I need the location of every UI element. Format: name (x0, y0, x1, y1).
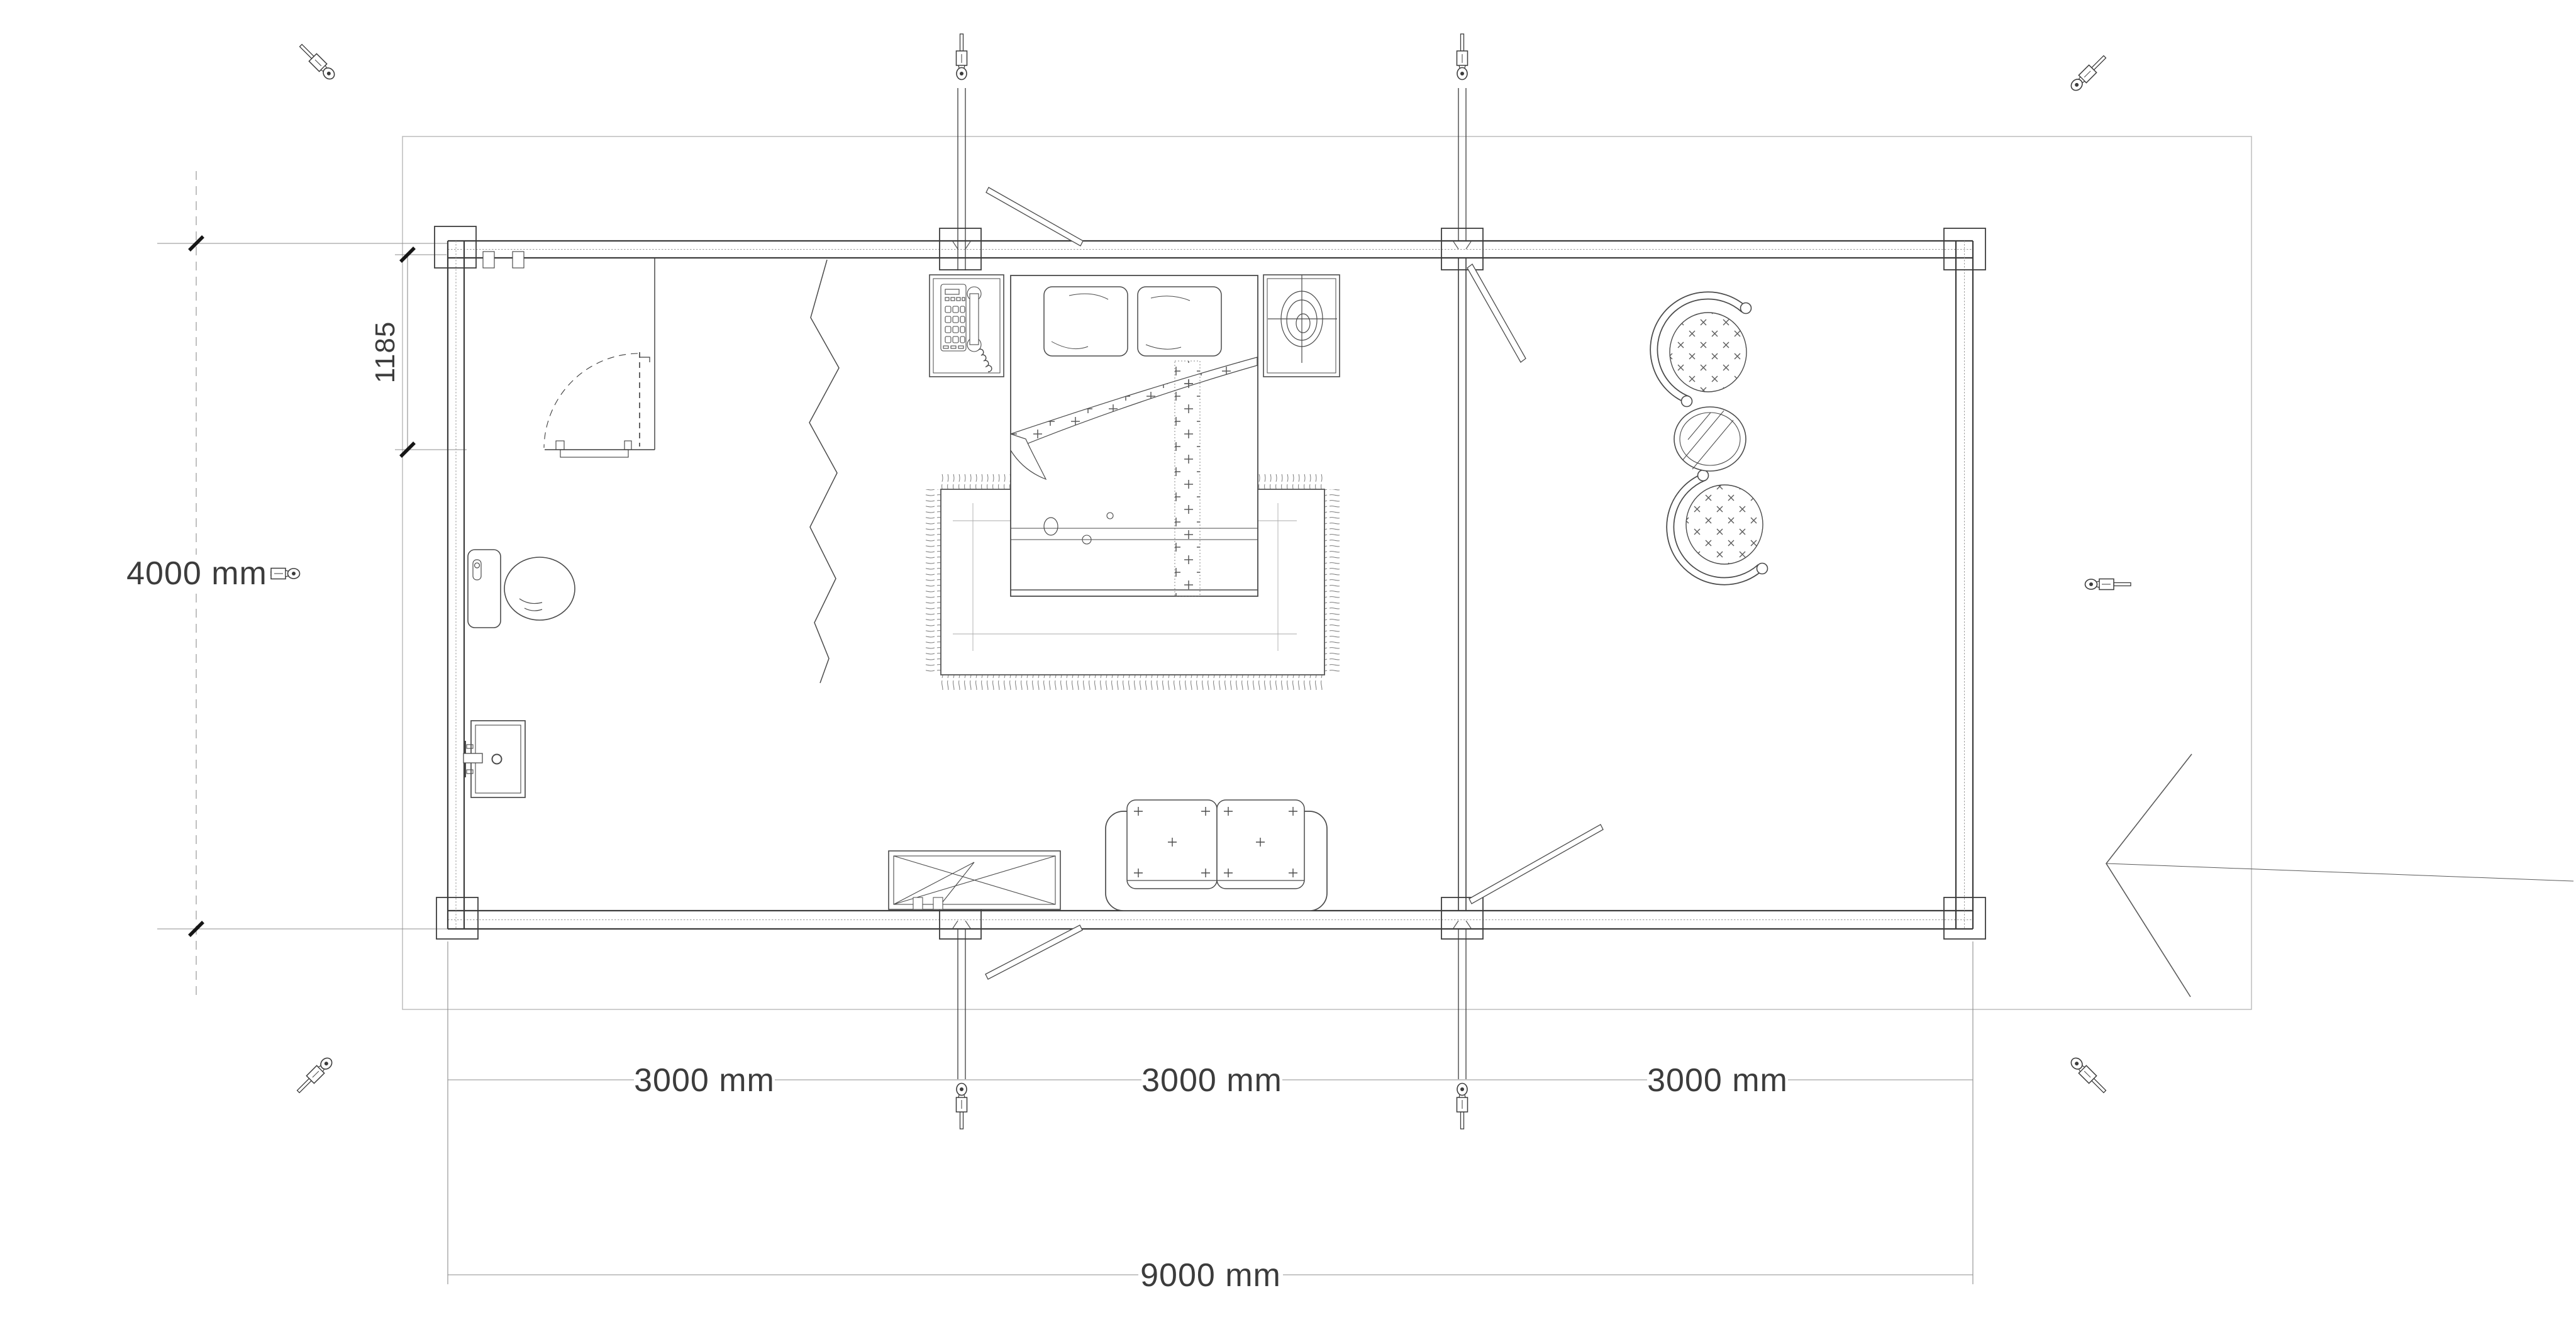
segment-dimension-label-3: 3000 mm (1647, 1062, 1788, 1099)
pole-anchor-icon-top-2 (1457, 34, 1468, 80)
corner-anchor-icon-top-right (2068, 53, 2108, 92)
corner-anchor-icon-bottom-right (2068, 1055, 2108, 1095)
floor-plan-svg: 4000 mm 1185 3000 mm 3000 mm 3000 mm 900… (0, 0, 2576, 1327)
pole-anchor-icon-top-1 (957, 34, 967, 80)
dimension-labels: 4000 mm 1185 3000 mm 3000 mm 3000 mm 900… (123, 303, 1788, 1294)
room-divider-wall (1458, 258, 1466, 911)
zigzag-curtain (809, 260, 839, 683)
turnbuckle-icon-right (2085, 579, 2131, 590)
bed-runner (1175, 361, 1200, 596)
entrance-arrow (2106, 754, 2573, 997)
washbasin (464, 721, 525, 797)
floor-plan-page: 4000 mm 1185 3000 mm 3000 mm 3000 mm 900… (0, 0, 2576, 1327)
crossed-table (889, 851, 1060, 909)
round-side-table (1674, 407, 1746, 471)
segment-dimension-label-1: 3000 mm (634, 1062, 775, 1099)
bathroom-partition (545, 258, 655, 457)
bedside-table-right (1263, 275, 1340, 377)
bathroom-wall-stubs (483, 252, 524, 268)
segment-dimension-label-2: 3000 mm (1141, 1062, 1282, 1099)
armchair-bottom (1670, 470, 1768, 582)
offset-dimension-label: 1185 (370, 321, 401, 384)
corner-anchor-icon-bottom-left (294, 1055, 334, 1095)
corner-anchor-icon-top-left (297, 42, 336, 81)
armchair-top (1654, 296, 1752, 407)
height-dimension-label: 4000 mm (126, 555, 267, 592)
rug-fringe (941, 474, 1011, 489)
pole-anchor-icon-bottom-2 (1457, 1084, 1468, 1130)
total-width-dimension-label: 9000 mm (1140, 1257, 1281, 1294)
bedside-table-left (930, 275, 1004, 377)
double-bed (1011, 275, 1258, 596)
toilet (468, 550, 575, 628)
bathroom-door (544, 352, 650, 448)
pole-anchor-icon-bottom-1 (957, 1084, 967, 1130)
loveseat-sofa (1106, 800, 1327, 911)
